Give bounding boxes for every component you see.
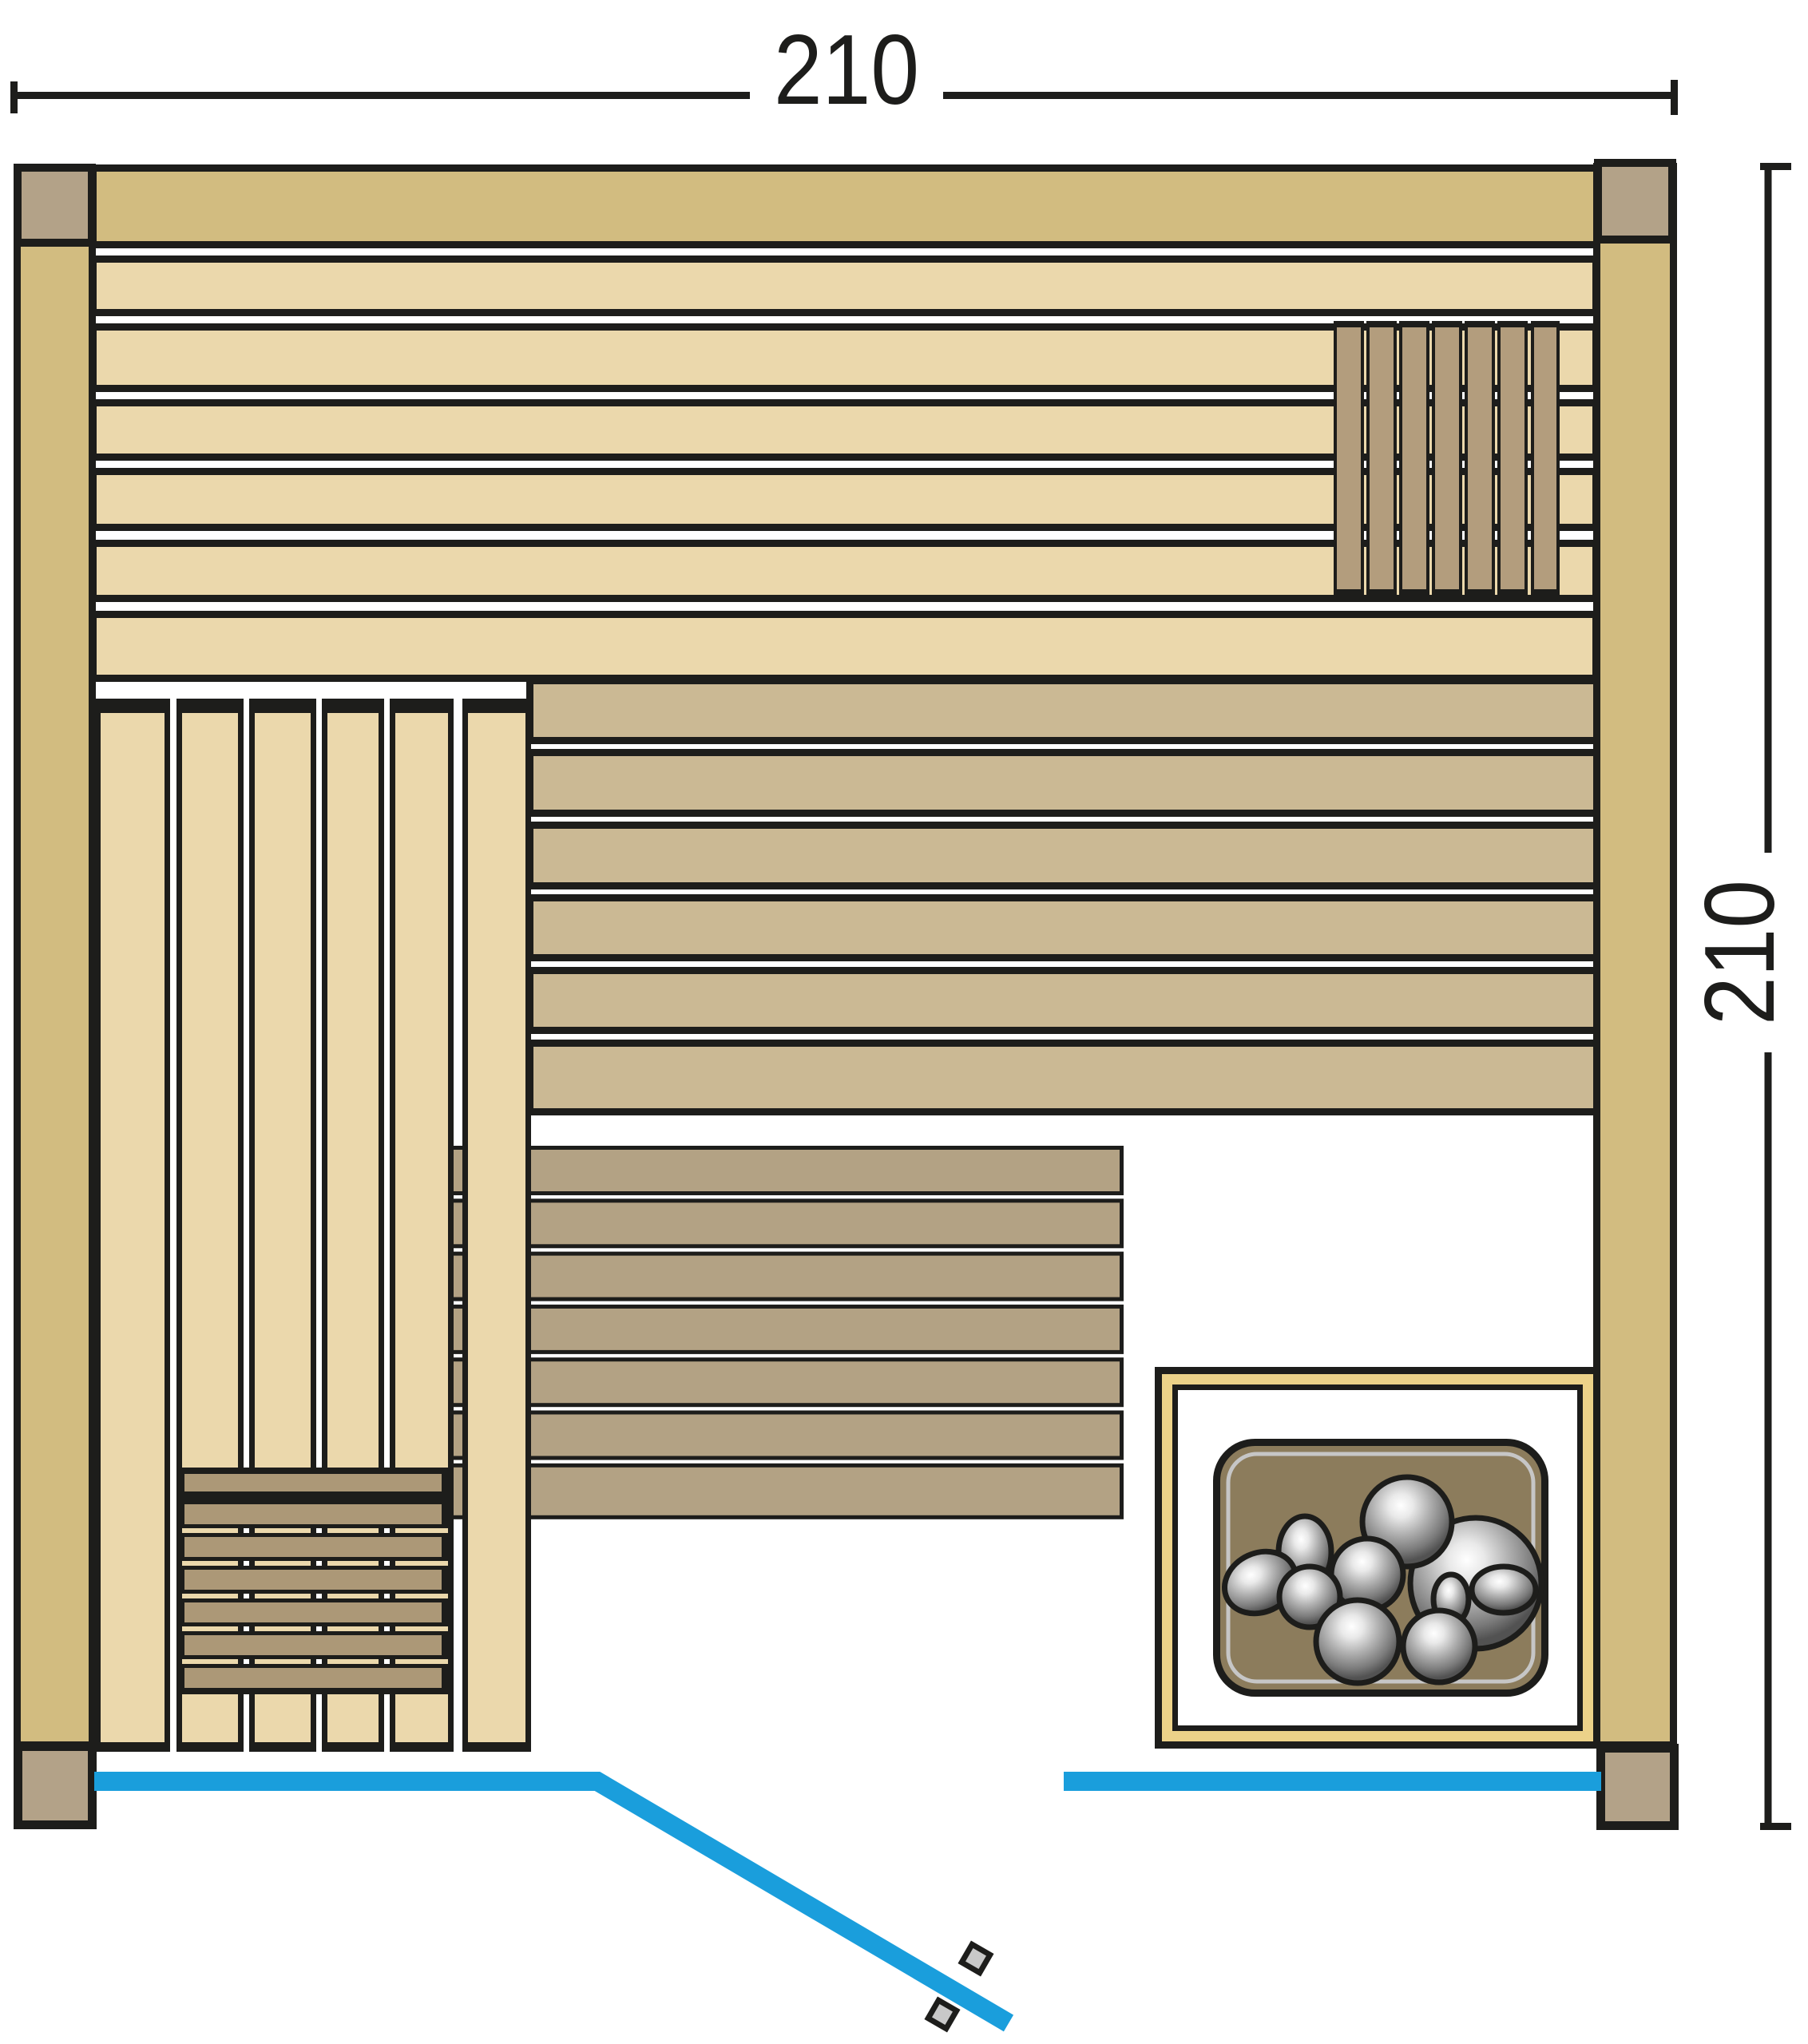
svg-text:210: 210 — [1685, 880, 1795, 1025]
svg-text:210: 210 — [774, 15, 919, 125]
